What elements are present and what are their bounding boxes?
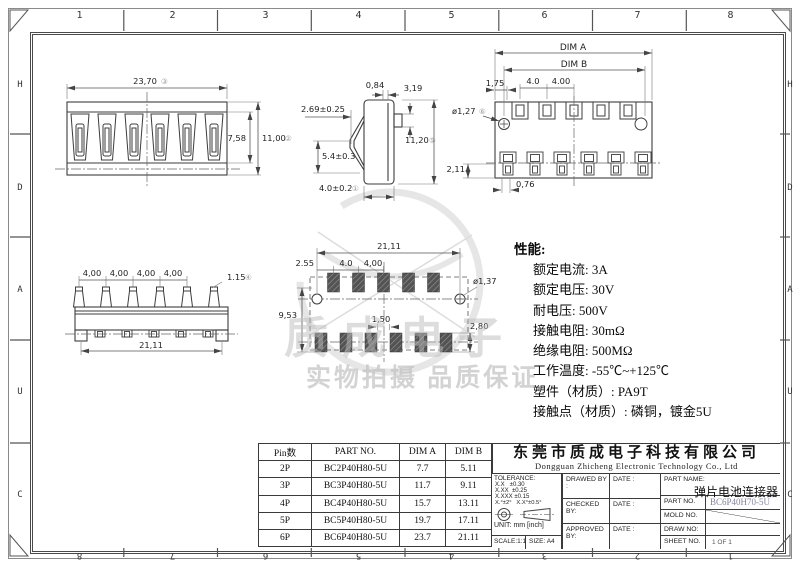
watermark-logo-text: 质成电子 xyxy=(284,302,516,366)
table-cell: 4P xyxy=(259,496,311,512)
table-cell: 21.11 xyxy=(446,530,491,546)
part-number-table: Pin数 PART NO. DIM A DIM B 2P BC2P40H80-5… xyxy=(258,443,492,547)
table-cell: 7.7 xyxy=(400,461,445,477)
table-cell: BC4P40H80-5U xyxy=(312,496,399,512)
dim-label: ø1,27 xyxy=(452,106,476,116)
dim-label: 4.0±0.2 xyxy=(319,183,352,193)
mold-no-label: MOLD NO. xyxy=(660,510,705,524)
dim-label: 4,00 xyxy=(364,258,382,268)
company-name-cn: 东莞市质成电子科技有限公司 xyxy=(493,444,780,462)
part-no-label: PART NO. xyxy=(660,496,705,510)
spec-line: 接触点（材质）: 磷铜，镀金5U xyxy=(514,402,780,422)
table-cell: 2P xyxy=(259,461,311,477)
company-name-en: Dongguan Zhicheng Electronic Technology … xyxy=(493,462,780,471)
dim-label: 1,75 xyxy=(486,78,504,88)
table-cell: 17.11 xyxy=(446,513,491,529)
table-cell: BC6P40H80-5U xyxy=(312,530,399,546)
dim-label: 11,20 xyxy=(405,135,429,145)
dim-label: DIM A xyxy=(560,43,587,53)
dim-label: 23,70 xyxy=(133,76,157,86)
title-block: 东莞市质成电子科技有限公司 Dongguan Zhicheng Electron… xyxy=(492,443,780,548)
company-header: 东莞市质成电子科技有限公司 Dongguan Zhicheng Electron… xyxy=(492,444,780,474)
specs-title: 性能: xyxy=(514,240,780,260)
top-view: DIM A DIM B 4.0 4.00 1,75 ø1,27 ⑥ 2,11 0… xyxy=(447,43,661,193)
spec-line: 额定电压: 30V xyxy=(514,280,780,300)
spec-line: 额定电流: 3A xyxy=(514,260,780,280)
dim-label: 2.69±0.25 xyxy=(301,104,345,114)
table-cell: 23.7 xyxy=(400,530,445,546)
checked-by-cell: CHECKED BY: xyxy=(562,499,609,524)
table-cell: 11.7 xyxy=(400,478,445,494)
drawed-date-cell: DATE : xyxy=(609,474,660,499)
dim-mark: ② xyxy=(285,134,292,143)
table-cell: BC5P40H80-5U xyxy=(312,513,399,529)
dim-label: 21,11 xyxy=(377,241,401,251)
dim-mark: ④ xyxy=(245,273,252,282)
side-view: 0,84 3,19 2.69±0.25 11,20 ⑤ 5.4±0.3 4.0±… xyxy=(301,80,438,201)
table-cell: 5.11 xyxy=(446,461,491,477)
dim-label: 4,00 xyxy=(83,268,101,278)
dim-label: 0,84 xyxy=(366,80,384,90)
table-cell: 9.11 xyxy=(446,478,491,494)
spec-line: 接触电阻: 30mΩ xyxy=(514,321,780,341)
scale-label: SCALE:1:1 xyxy=(492,536,526,549)
bottom-view: 4,00 4,00 4,00 4,00 1.15 ④ 21,11 xyxy=(65,268,252,355)
size-label: SIZE: A4 xyxy=(526,536,562,549)
dim-mark: ① xyxy=(352,184,359,193)
spec-line: 工作温度: -55℃~+125℃ xyxy=(514,361,780,381)
part-name-cell: PART NAME: 弹片电池连接器 xyxy=(660,474,780,496)
unit-label: UNIT: mm [inch] xyxy=(492,522,561,529)
dim-label: 3,19 xyxy=(404,83,422,93)
table-cell: 13.11 xyxy=(446,496,491,512)
table-header: Pin数 xyxy=(259,444,311,460)
dim-label: 2,11 xyxy=(447,164,465,174)
dim-label: 1.15 xyxy=(227,272,245,282)
part-name-label: PART NAME: xyxy=(661,474,780,483)
tolerance-title: TOLERANCE: xyxy=(492,474,561,482)
table-cell: 3P xyxy=(259,478,311,494)
approved-date-cell: DATE : xyxy=(609,524,660,549)
dim-label: 5.4±0.3 xyxy=(322,151,355,161)
mold-no-value xyxy=(705,510,780,524)
dim-label: 4.0 xyxy=(526,76,539,86)
table-header: PART NO. xyxy=(312,444,399,460)
spec-line: 耐电压: 500V xyxy=(514,301,780,321)
dim-label: 21,11 xyxy=(139,340,163,350)
dim-label: 4,00 xyxy=(164,268,182,278)
dim-label: 4,00 xyxy=(137,268,155,278)
table-header: DIM A xyxy=(400,444,445,460)
table-cell: 19.7 xyxy=(400,513,445,529)
table-cell: 6P xyxy=(259,530,311,546)
draw-no-value xyxy=(705,524,780,536)
drawed-by-cell: DRAWED BY : xyxy=(562,474,609,499)
table-cell: 15.7 xyxy=(400,496,445,512)
tolerance-cell: TOLERANCE: X.X ±0.30 X.XX ±0.25 X.XXX ±0… xyxy=(492,474,562,549)
dim-label: 2.55 xyxy=(296,258,314,268)
dim-label: 4,00 xyxy=(110,268,128,278)
approved-by-cell: APPROVED BY: xyxy=(562,524,609,549)
sheet-no-value: 1 OF 1 xyxy=(705,536,780,549)
dim-label: 7,58 xyxy=(228,133,246,143)
dim-label: 4.00 xyxy=(552,76,570,86)
table-cell: BC2P40H80-5U xyxy=(312,461,399,477)
third-angle-projection-icon xyxy=(494,507,560,522)
dim-label: 0,76 xyxy=(516,179,534,189)
dim-mark: ⑥ xyxy=(479,107,486,116)
dim-mark: ③ xyxy=(161,77,168,86)
front-view: 23,70 ③ 7,58 11,00 ② xyxy=(55,76,292,186)
dim-label: 11,00 xyxy=(262,133,286,143)
dim-mark: ⑤ xyxy=(429,136,436,145)
table-header: DIM B xyxy=(446,444,491,460)
draw-no-label: DRAW NO: xyxy=(660,524,705,536)
table-cell: BC3P40H80-5U xyxy=(312,478,399,494)
dim-label: ø1,37 xyxy=(473,276,497,286)
sheet-no-label: SHEET NO. xyxy=(660,536,705,549)
performance-specs: 性能: 额定电流: 3A 额定电压: 30V 耐电压: 500V 接触电阻: 3… xyxy=(514,240,780,422)
spec-line: 塑件（材质）: PA9T xyxy=(514,382,780,402)
tolerance-angle: X.°±2° X.X°±0.5° xyxy=(492,500,561,506)
spec-line: 绝缘电阻: 500MΩ xyxy=(514,341,780,361)
engineering-drawing-page: 1 2 3 4 5 6 7 8 8 7 6 5 4 3 2 1 H D A U … xyxy=(0,0,800,565)
dim-label: 4.0 xyxy=(339,258,352,268)
table-cell: 5P xyxy=(259,513,311,529)
watermark-slogan: 实物拍摄 品质保证 xyxy=(306,358,539,394)
checked-date-cell: DATE : xyxy=(609,499,660,524)
part-no-value: BC6P40H70-5U xyxy=(705,496,780,510)
dim-label: DIM B xyxy=(561,60,587,70)
